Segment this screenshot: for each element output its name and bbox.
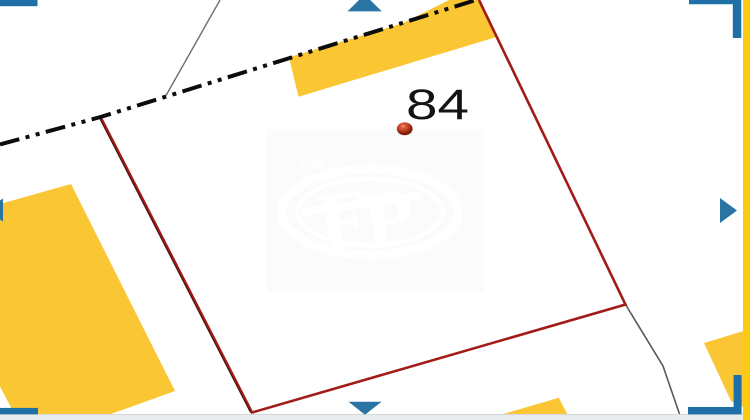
svg-text:S20: S20 [300, 156, 325, 175]
svg-text:84: 84 [406, 82, 469, 129]
